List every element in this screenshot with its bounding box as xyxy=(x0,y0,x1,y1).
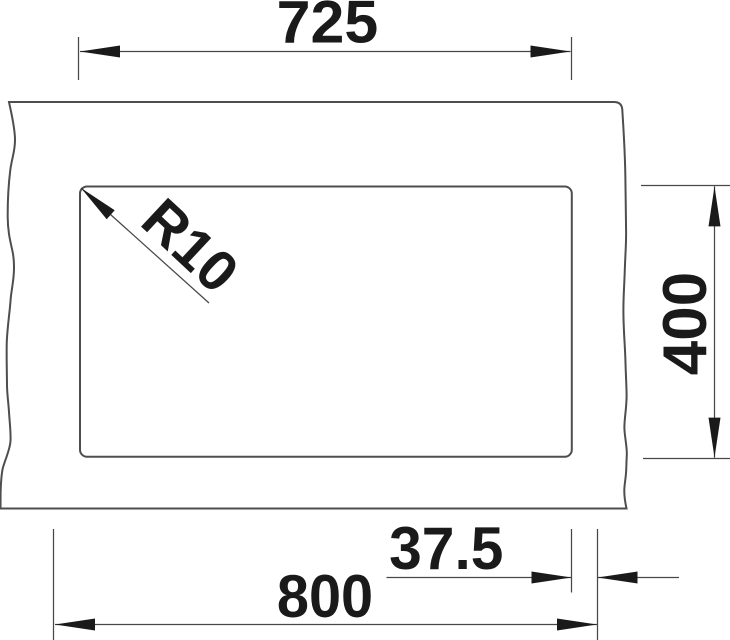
svg-text:800: 800 xyxy=(277,563,373,630)
svg-text:37.5: 37.5 xyxy=(389,515,503,582)
svg-text:725: 725 xyxy=(277,0,379,55)
svg-text:400: 400 xyxy=(651,272,720,375)
